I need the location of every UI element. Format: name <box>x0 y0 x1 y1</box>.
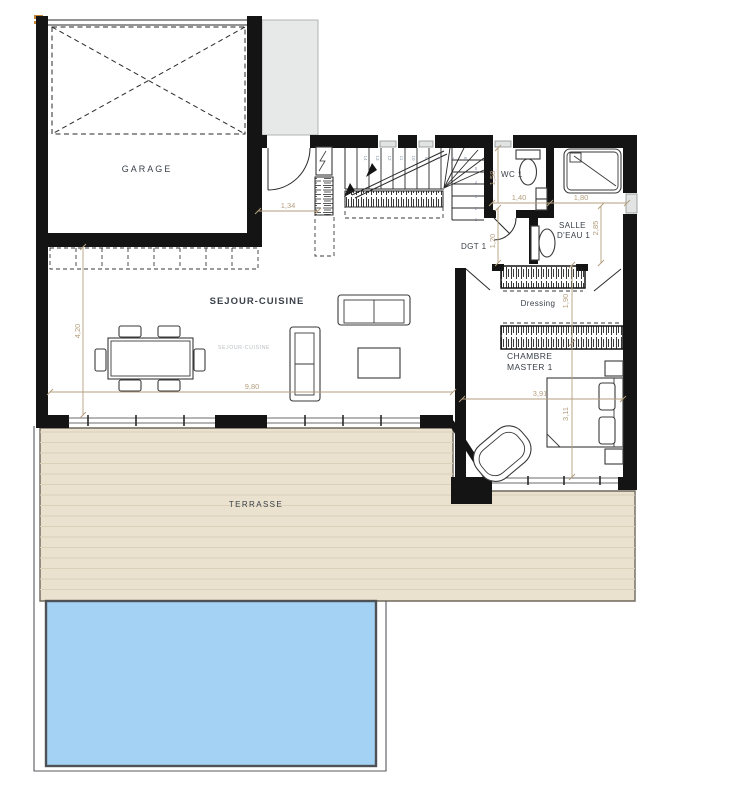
nightstand <box>605 361 623 376</box>
living-room <box>50 248 410 401</box>
entry-closet-overhead <box>315 215 334 256</box>
dim-180: 1,80 <box>574 193 589 202</box>
window <box>380 141 396 147</box>
wc-basin <box>536 199 547 210</box>
bedroom-label-line2: MASTER 1 <box>507 362 553 372</box>
chair <box>158 326 180 337</box>
dim-190: 1,90 <box>561 294 570 309</box>
stair-step-number: 5 <box>475 166 478 171</box>
dim-158: 1,58 <box>488 171 497 186</box>
stair-direction-arrow-icon <box>366 163 377 177</box>
stair-step-number: 6 <box>463 157 468 160</box>
garage <box>34 15 247 134</box>
entry-closet <box>315 177 333 215</box>
entry-door-swing <box>268 148 310 190</box>
living-room-small-label: SEJOUR-CUISINE <box>218 345 270 351</box>
staircase: 1234567891011121314 <box>344 148 484 222</box>
floor-plan-drawing: 1234567891011121314 <box>0 0 730 800</box>
pillow <box>599 383 615 410</box>
dressing-door-leaf <box>466 269 490 290</box>
stair-step-number: 13 <box>375 155 380 161</box>
nightstand <box>605 449 623 464</box>
stair-step-number: 11 <box>399 156 404 161</box>
understair-storage <box>345 191 443 207</box>
living-room-label: SEJOUR-CUISINE <box>210 296 305 307</box>
entry <box>268 147 334 256</box>
terrace-label: TERRASSE <box>229 500 283 509</box>
toilet-tank <box>516 150 540 159</box>
chair <box>95 349 106 371</box>
chair <box>119 326 141 337</box>
floor-plan-page: 1234567891011121314 <box>0 0 730 800</box>
dressing-label: Dressing <box>521 299 556 308</box>
coffee-table <box>358 348 400 378</box>
master-bedroom <box>467 361 623 488</box>
chair <box>158 380 180 391</box>
window <box>419 141 433 147</box>
dim-140: 1,40 <box>512 193 527 202</box>
wc-door-leaf <box>494 218 510 234</box>
understair-storage-overhead <box>345 207 443 218</box>
stair-step-number: 14 <box>363 155 368 161</box>
wc-basin <box>536 188 547 199</box>
swimming-pool <box>46 601 376 766</box>
dim-420: 4,20 <box>73 324 82 339</box>
chair <box>194 349 205 371</box>
chair <box>119 380 141 391</box>
dining-table <box>108 338 193 379</box>
stair-step-number: 12 <box>387 155 392 161</box>
bathroom-label-line2: D'EAU 1 <box>557 231 590 240</box>
wc-label: WC 1 <box>501 170 523 179</box>
wardrobe <box>501 326 623 349</box>
dim-980: 9,80 <box>245 382 260 391</box>
terrace-deck <box>40 428 635 601</box>
garage-label: GARAGE <box>122 164 173 174</box>
entry-porch <box>262 20 318 135</box>
dim-311: 3,11 <box>561 407 570 421</box>
window <box>495 141 511 147</box>
dim-285: 2,85 <box>591 221 600 236</box>
terrace <box>38 428 636 601</box>
vanity <box>531 226 539 260</box>
shower <box>564 149 621 193</box>
bathroom-label-line1: SALLE <box>559 221 586 230</box>
bathroom-door-leaf <box>594 269 621 291</box>
stair-step-number: 2 <box>475 206 478 211</box>
kitchen-units <box>76 248 232 269</box>
dim-391: 3,91 <box>533 389 548 398</box>
washbasin <box>539 229 555 257</box>
pillow <box>599 417 615 444</box>
hallway-label: DGT 1 <box>461 242 487 251</box>
bedroom-label-line1: CHAMBRE <box>507 351 552 361</box>
stair-step-number: 10 <box>411 155 416 161</box>
dim-134: 1,34 <box>281 201 296 210</box>
dim-120: 1,20 <box>488 234 497 249</box>
stair-step-number: 3 <box>475 194 478 199</box>
